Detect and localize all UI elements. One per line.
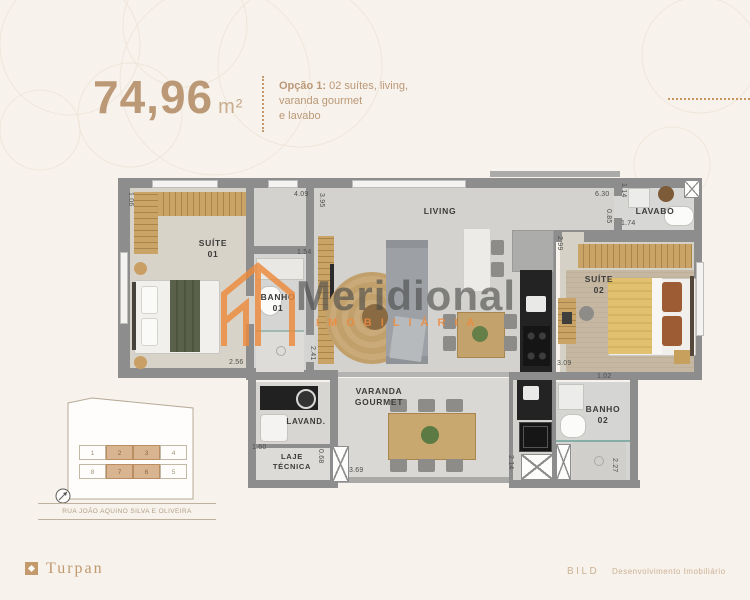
chair (418, 459, 435, 472)
room-label-banho02: BANHO 02 (582, 404, 624, 426)
sliding-door (338, 372, 509, 377)
keyplan-unit-8: 8 (79, 464, 106, 479)
turpan-brand: Turpan (46, 560, 104, 578)
wall (118, 368, 256, 378)
option-rest: 02 suítes, living, (329, 80, 408, 92)
dimension: 2.56 (229, 359, 243, 366)
window (120, 252, 128, 324)
wardrobe (578, 244, 692, 268)
room-label-suite02: SUÍTE 02 (578, 274, 620, 296)
table-plant (421, 426, 439, 444)
dimension: 1.14 (620, 183, 627, 197)
shower-drain (594, 456, 604, 466)
dimension: 1.02 (597, 373, 611, 380)
wall (490, 171, 620, 177)
wardrobe (134, 192, 158, 254)
green-blanket (170, 280, 200, 352)
keyplan-unit-7: 7 (106, 464, 133, 479)
street-name: RUA JOÃO AQUINO SILVA E OLIVEIRA (38, 503, 216, 520)
dotted-line-decoration (668, 98, 750, 100)
option-description: Opção 1: 02 suítes, living, varanda gour… (279, 79, 408, 124)
wall (256, 444, 330, 448)
dimension: 1.54 (297, 249, 311, 256)
bathroom-counter (558, 384, 584, 410)
chair (446, 459, 463, 472)
window (352, 180, 466, 188)
dotted-divider (262, 76, 264, 132)
pillow (141, 318, 158, 346)
option-title: Opção 1: (279, 80, 326, 92)
shaft (332, 446, 349, 482)
bild-brand: BILD (567, 566, 599, 577)
watermark-subtitle: IMOBILIÁRIA (316, 317, 483, 329)
dining-chair (443, 336, 456, 351)
pillow (662, 282, 682, 312)
wall (248, 378, 256, 482)
area-value: 74,96 (93, 71, 213, 123)
shaft (521, 454, 553, 480)
keyplan-unit-6: 6 (133, 464, 160, 479)
stool (491, 240, 504, 255)
pillow (141, 286, 158, 314)
room-label-lavand: LAVAND. (284, 417, 328, 427)
dimension: 0.68 (317, 449, 324, 463)
door-opening (614, 196, 622, 218)
balcony-rail (338, 477, 509, 483)
pillow (662, 316, 682, 346)
wall (509, 372, 556, 380)
washer (296, 389, 316, 409)
kitchen-sink (523, 386, 539, 400)
dimension: 2.27 (611, 458, 618, 472)
lavabo-sink (628, 188, 650, 208)
oven (519, 422, 552, 452)
shaft (684, 180, 700, 198)
room-label-lavabo: LAVABO (632, 206, 678, 217)
keyplan-unit-4: 4 (160, 445, 187, 460)
desk-chair (579, 306, 594, 321)
chair (446, 399, 463, 412)
option-line-2: varanda gourmet (279, 94, 408, 109)
keyplan-unit-5: 5 (160, 464, 187, 479)
keyplan-unit-2: 2 (106, 445, 133, 460)
sofa-armrest (386, 240, 428, 248)
option-line-3: e lavabo (279, 109, 408, 124)
chair (390, 459, 407, 472)
bench (674, 350, 690, 364)
dimension: 1.60 (252, 444, 266, 451)
logo-mark (28, 565, 35, 572)
area-unit: m² (218, 96, 243, 118)
bed-sheet (652, 278, 662, 354)
entry-door (268, 180, 298, 188)
wall (509, 480, 640, 488)
kitchen-cabinet (512, 230, 554, 272)
apartment-area: 74,96m² (93, 70, 243, 124)
wall (248, 480, 338, 488)
dimension: 2.14 (507, 455, 514, 469)
side-table (134, 356, 147, 369)
chair (418, 399, 435, 412)
window (152, 180, 218, 188)
shaft (556, 444, 571, 480)
cooktop (523, 326, 550, 366)
dimension: 2.41 (309, 346, 316, 360)
north-arrow (56, 489, 70, 503)
turpan-logo-icon (25, 562, 38, 575)
bild-tagline: Desenvolvimento Imobiliário (612, 567, 726, 576)
decor-plant (658, 186, 674, 202)
keyplan-unit-1: 1 (79, 445, 106, 460)
headboard (690, 276, 694, 356)
laptop (562, 312, 572, 324)
dining-chair (504, 336, 517, 351)
dimension: 3.09 (557, 360, 571, 367)
wall (552, 372, 702, 380)
watermark-brand: Meridional (296, 272, 516, 320)
room-label-laje-tecnica: LAJE TÉCNICA (260, 452, 324, 472)
room-label-living: LIVING (414, 206, 466, 217)
keyplan-unit-3: 3 (133, 445, 160, 460)
wall (630, 378, 638, 482)
dimension: 3.69 (349, 467, 363, 474)
dimension: 3.95 (318, 193, 325, 207)
option-line-1: Opção 1: 02 suítes, living, (279, 79, 408, 94)
dimension: 1.06 (127, 192, 134, 206)
key-plan: 1 2 3 4 8 7 6 5 RUA JOÃO AQUINO SILVA E … (38, 392, 218, 524)
side-table (134, 262, 147, 275)
dimension: 2.99 (556, 236, 563, 250)
kitchen-sink (526, 296, 546, 312)
window (696, 262, 704, 336)
door-opening (562, 232, 584, 242)
marketing-floorplan-page: 74,96m² Opção 1: 02 suítes, living, vara… (0, 0, 750, 600)
dimension: 4.09 (294, 191, 308, 198)
dimension: 0.85 (605, 209, 612, 223)
meridional-logo-watermark (216, 256, 302, 352)
room-label-varanda-gourmet: VARANDA GOURMET (348, 386, 410, 408)
dimension: 6.30 (595, 191, 609, 198)
dimension: 1.74 (621, 220, 635, 227)
headboard (132, 282, 136, 350)
